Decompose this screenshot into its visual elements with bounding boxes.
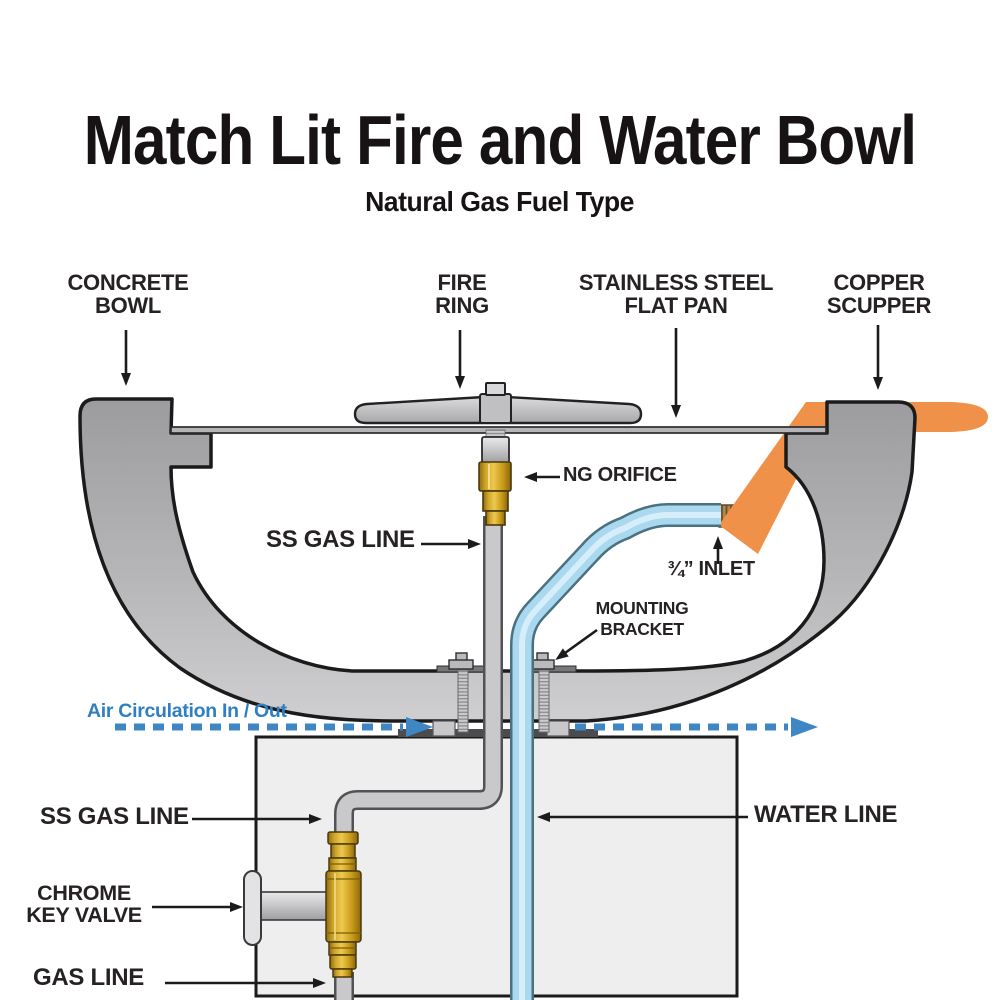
- page-title: Match Lit Fire and Water Bowl: [0, 100, 1000, 180]
- callout-ss-gas-line-lower: SS GAS LINE: [40, 805, 189, 830]
- callout-concrete-bowl: CONCRETEBOWL: [67, 272, 188, 317]
- fire-ring-shape: [355, 383, 641, 423]
- diagram-canvas: Match Lit Fire and Water Bowl Natural Ga…: [0, 0, 1000, 1000]
- callout-fire-ring: FIRERING: [435, 272, 489, 317]
- callout-flat-pan: STAINLESS STEELFLAT PAN: [579, 272, 773, 317]
- callout-water-line: WATER LINE: [754, 803, 897, 828]
- page-subtitle: Natural Gas Fuel Type: [0, 186, 1000, 218]
- callout-chrome-key-valve: CHROMEKEY VALVE: [26, 882, 142, 926]
- leader-mounting-bracket: [565, 630, 597, 653]
- callout-ng-orifice: NG ORIFICE: [563, 465, 677, 486]
- callout-mounting-bracket: MOUNTINGBRACKET: [596, 598, 689, 640]
- ng-orifice-fitting: [479, 430, 511, 525]
- callout-inlet: ¾” INLET: [667, 559, 755, 580]
- brass-key-valve: [326, 832, 361, 977]
- callout-ss-gas-line-upper: SS GAS LINE: [266, 528, 415, 553]
- label-air-circulation: Air Circulation In / Out: [87, 701, 287, 721]
- callout-copper-scupper: COPPERSCUPPER: [827, 272, 931, 317]
- callout-gas-line: GAS LINE: [33, 966, 144, 991]
